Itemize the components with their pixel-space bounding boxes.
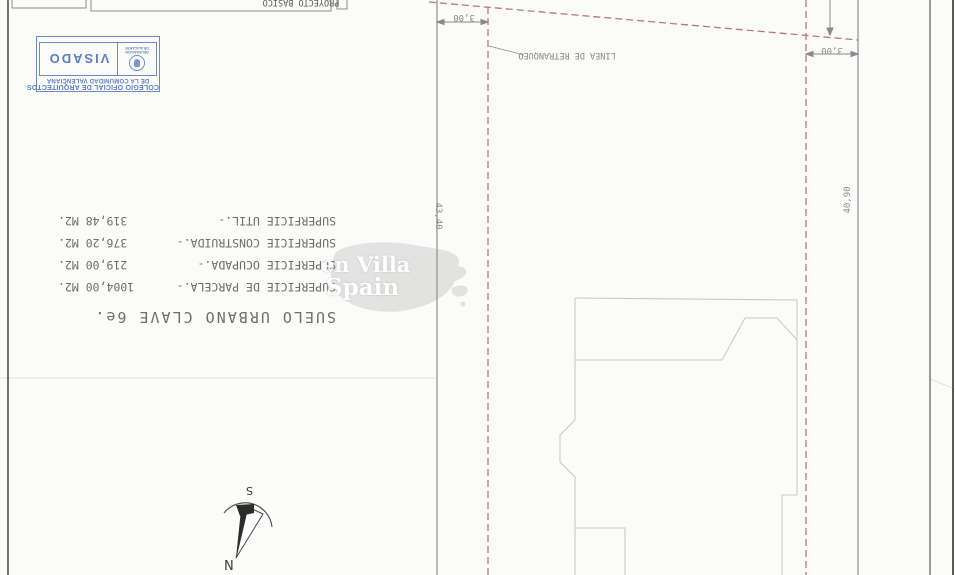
north-arrow xyxy=(224,503,272,558)
stamp-college-name: COLEGIO OFICIAL DE ARQUITECTOS xyxy=(37,83,159,90)
scanned-site-plan-sheet: { "title_block": { "label": "PROYECTO BA… xyxy=(0,0,955,575)
dim-side-right: 40,90 xyxy=(843,177,855,223)
building-outline xyxy=(560,298,797,575)
surface-value: 219,00 M2. xyxy=(58,254,127,276)
surface-value: 1004,00 M2. xyxy=(58,276,134,298)
compass-north-label: N xyxy=(224,556,234,571)
surface-row: SUPERFICIE CONSTRUIDA.- 376,20 M2. xyxy=(58,232,336,254)
zoning-summary: SUELO URBANO CLAVE 6e. SUPERFICIE DE PAR… xyxy=(58,212,336,326)
title-block-project-type: PROYECTO BASICO xyxy=(258,0,344,8)
dim-front-left: 3,00 xyxy=(441,12,487,22)
zoning-title: SUELO URBANO CLAVE 6e. xyxy=(58,308,336,326)
stamp-visado-text: VISADO xyxy=(40,43,117,75)
surface-label: SUPERFICIE DE PARCELA.- xyxy=(177,276,336,298)
setback-line-label: LINEA DE RETRANQUEO xyxy=(514,50,620,60)
surface-label: SUPERFICIE CONSTRUIDA.- xyxy=(177,232,336,254)
surface-row: SUPERFICIE OCUPADA.- 219,00 M2. xyxy=(58,254,336,276)
stamp-community-name: DE LA COMUNIDAD VALENCIANA xyxy=(37,77,159,83)
watermark-text-line2: Spain xyxy=(326,274,399,301)
dim-front-right: 3,00 xyxy=(808,45,856,55)
college-seal-icon xyxy=(129,56,145,72)
parcel-boundary-lines xyxy=(437,0,858,575)
dim-side-left: 43,40 xyxy=(431,193,443,239)
stamp-delegation-line2: DE ALICANTE xyxy=(125,47,148,51)
fold-lines xyxy=(0,378,955,389)
visado-stamp: COLEGIO OFICIAL DE ARQUITECTOS DE LA COM… xyxy=(36,36,160,92)
surface-row: SUPERFICIE UTIL.- 319,48 M2. xyxy=(58,210,336,232)
stamp-delegation-line1: DELEGACION xyxy=(125,51,148,55)
surface-value: 319,48 M2. xyxy=(58,210,127,232)
surface-value: 376,20 M2. xyxy=(58,232,127,254)
surface-label: SUPERFICIE UTIL.- xyxy=(218,210,336,232)
stamp-emblem-cell: DELEGACION DE ALICANTE xyxy=(117,43,156,75)
surface-row: SUPERFICIE DE PARCELA.- 1004,00 M2. xyxy=(58,276,336,298)
surface-label: SUPERFICIE OCUPADA.- xyxy=(198,254,336,276)
setback-dashed-lines xyxy=(429,0,858,575)
compass-south-label: S xyxy=(246,484,253,497)
